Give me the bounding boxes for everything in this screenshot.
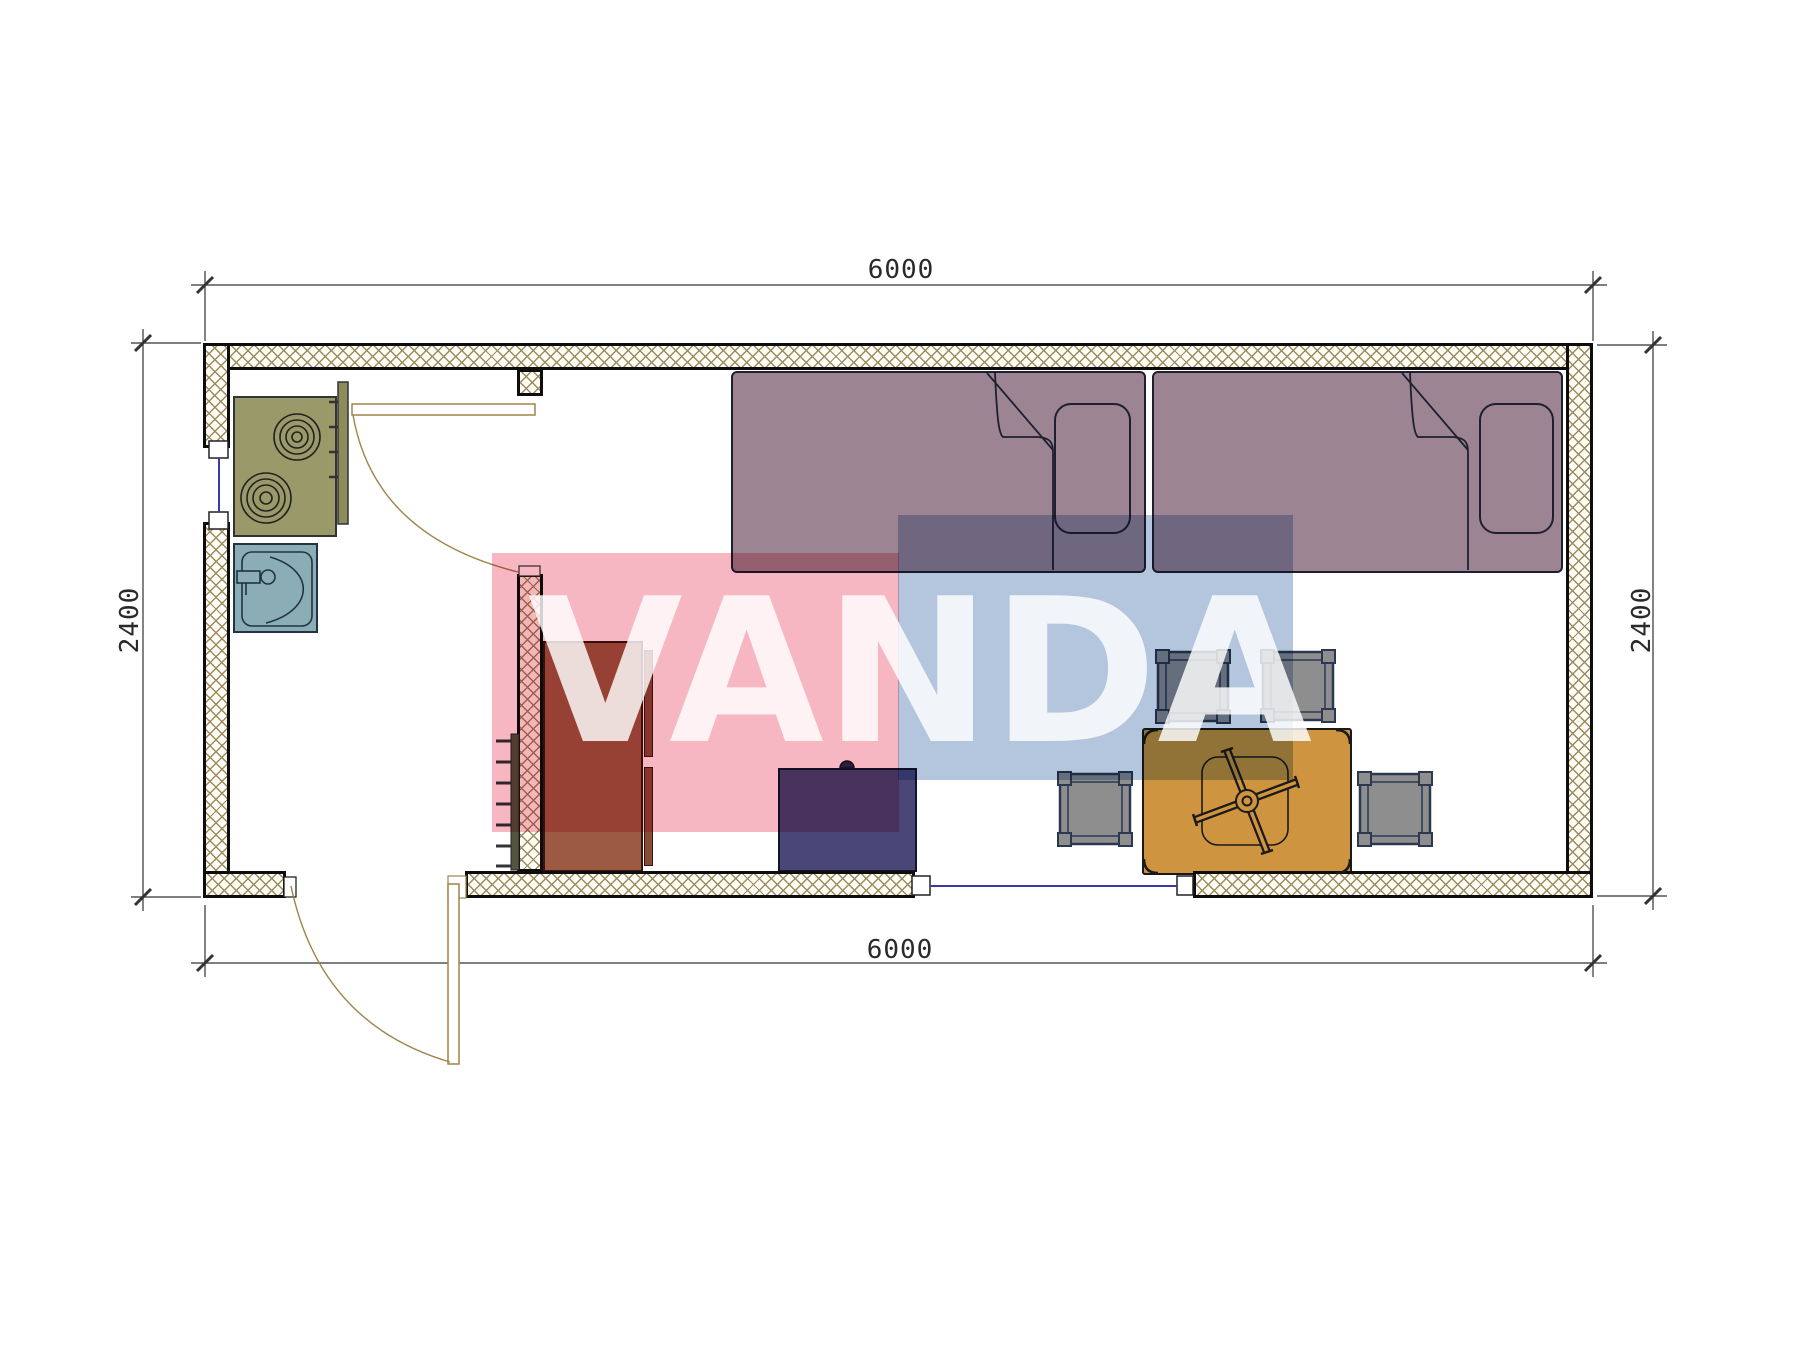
stool (1358, 772, 1432, 846)
watermark-text: VANDA (548, 584, 1292, 760)
window-left (209, 441, 228, 529)
dimension-label-bottom: 6000 (835, 935, 965, 965)
dimension-label-left: 2400 (115, 555, 145, 685)
sink-basin (237, 552, 312, 626)
floor-plan: 6000 6000 2400 2400 VANDA (0, 0, 1800, 1350)
cooktop-burners (241, 382, 348, 524)
dimension-label-right: 2400 (1627, 555, 1657, 685)
interior-door (352, 404, 540, 576)
bed-right-pillow-and-fold (1402, 373, 1553, 570)
dimension-label-top: 6000 (836, 255, 966, 285)
exterior-door (284, 876, 466, 1064)
window-bottom (912, 876, 1193, 895)
